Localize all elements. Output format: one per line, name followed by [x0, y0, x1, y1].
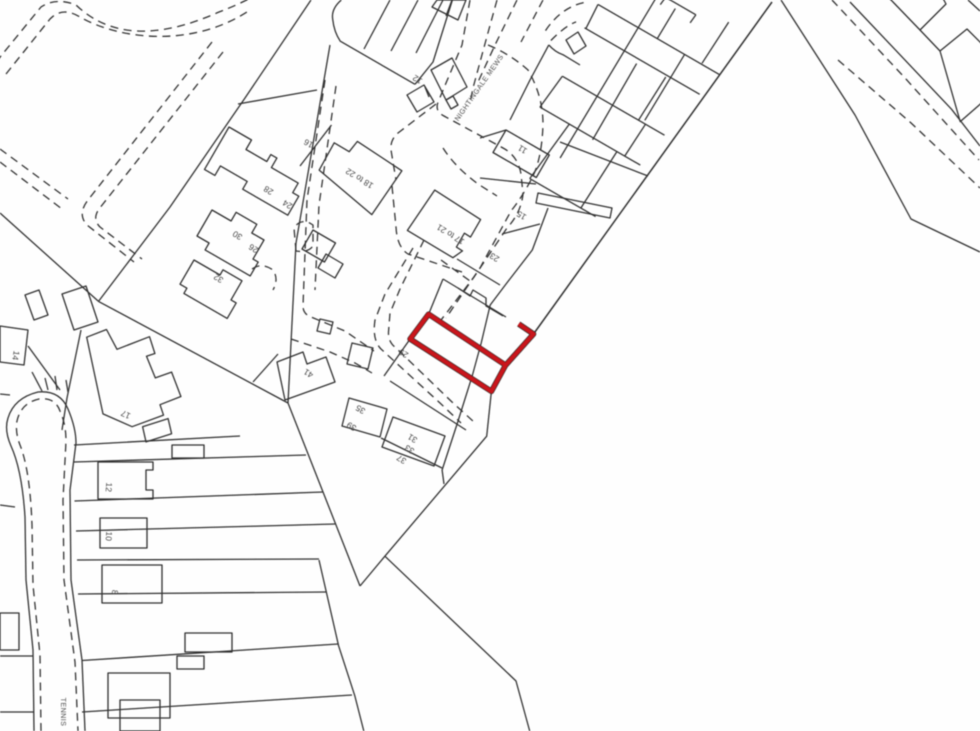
svg-text:TENNIS: TENNIS: [59, 698, 68, 727]
svg-text:14: 14: [10, 350, 22, 361]
svg-text:12: 12: [104, 482, 115, 493]
svg-text:10: 10: [104, 531, 115, 542]
